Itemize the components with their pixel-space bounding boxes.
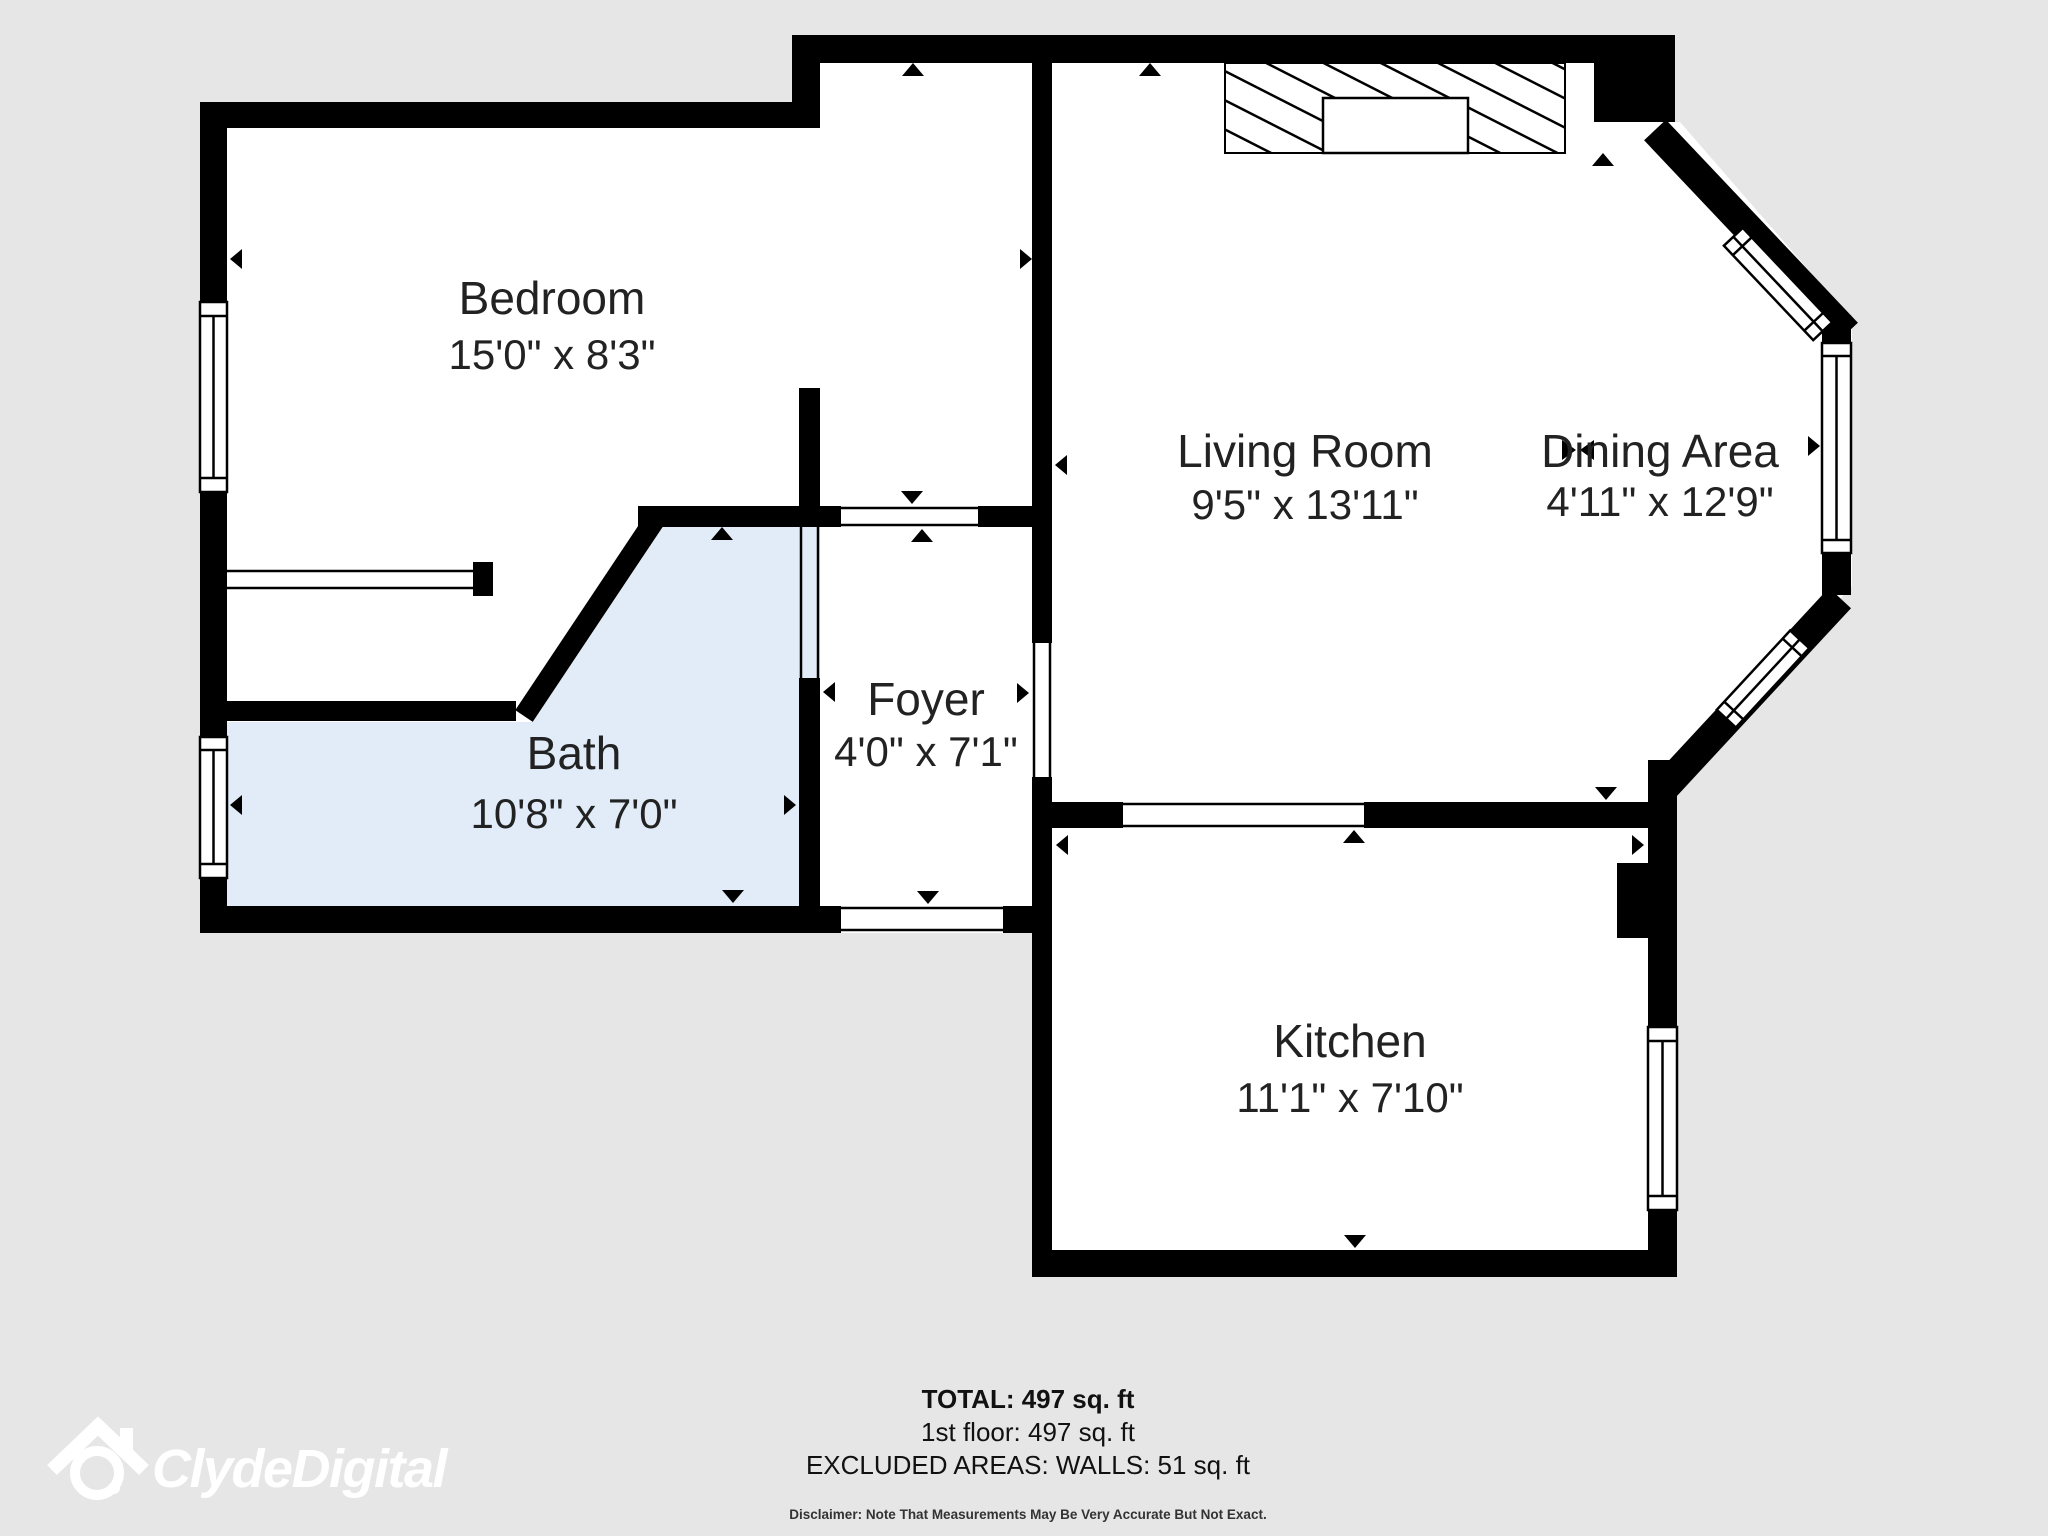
- bath-window-icon: [200, 737, 227, 878]
- bath-bottom-wall: [200, 906, 841, 933]
- chimney-block: [1594, 35, 1675, 122]
- floor-plan: Bedroom 15'0" x 8'3" Living Room 9'5" x …: [0, 0, 2048, 1536]
- foyer-dims: 4'0" x 7'1": [834, 728, 1018, 775]
- kitchen-dims: 11'1" x 7'10": [1236, 1074, 1463, 1121]
- kitchen-corner-block: [1617, 863, 1648, 938]
- living-left-wall-lower: [1032, 777, 1052, 1277]
- fireplace-hatch: [1225, 63, 1565, 153]
- bedroom-top-wall: [200, 102, 820, 128]
- bedroom-window-icon: [200, 302, 227, 492]
- top-outer-wall: [792, 35, 1602, 63]
- first-floor-area-text: 1st floor: 497 sq. ft: [921, 1417, 1136, 1447]
- foyer-left-upper-wall: [799, 388, 820, 506]
- excluded-areas-text: EXCLUDED AREAS: WALLS: 51 sq. ft: [806, 1450, 1251, 1480]
- dining-area-dims: 4'11" x 12'9": [1546, 478, 1773, 525]
- kitchen-bottom-wall: [1032, 1250, 1677, 1277]
- living-room-label: Living Room: [1177, 425, 1433, 477]
- living-room-dims: 9'5" x 13'11": [1191, 481, 1418, 528]
- bath-label: Bath: [527, 727, 622, 779]
- kitchen-window-icon: [1648, 1027, 1677, 1210]
- hearth-box: [1323, 98, 1468, 153]
- bay-right-window-icon: [1822, 343, 1851, 553]
- brand-name: ClydeDigital: [152, 1439, 449, 1499]
- dining-area-label: Dining Area: [1541, 425, 1779, 477]
- floor-plan-page: Bedroom 15'0" x 8'3" Living Room 9'5" x …: [0, 0, 2048, 1536]
- living-left-wall-upper: [1032, 63, 1052, 643]
- bedroom-bottom-wall: [200, 701, 516, 721]
- foyer-label: Foyer: [867, 673, 985, 725]
- kitchen-top-wall-right: [1364, 802, 1648, 828]
- bedroom-dims: 15'0" x 8'3": [449, 331, 656, 378]
- total-area-text: TOTAL: 497 sq. ft: [922, 1384, 1135, 1414]
- foyer-left-lower-wall: [799, 678, 820, 906]
- bedroom-label: Bedroom: [459, 272, 646, 324]
- bath-dims: 10'8" x 7'0": [471, 790, 678, 837]
- kitchen-top-wall-left: [1052, 802, 1123, 828]
- kitchen-label: Kitchen: [1273, 1015, 1426, 1067]
- bath-top-wall: [638, 506, 841, 527]
- disclaimer-text: Disclaimer: Note That Measurements May B…: [789, 1507, 1266, 1522]
- closet-stub-wall: [473, 562, 493, 596]
